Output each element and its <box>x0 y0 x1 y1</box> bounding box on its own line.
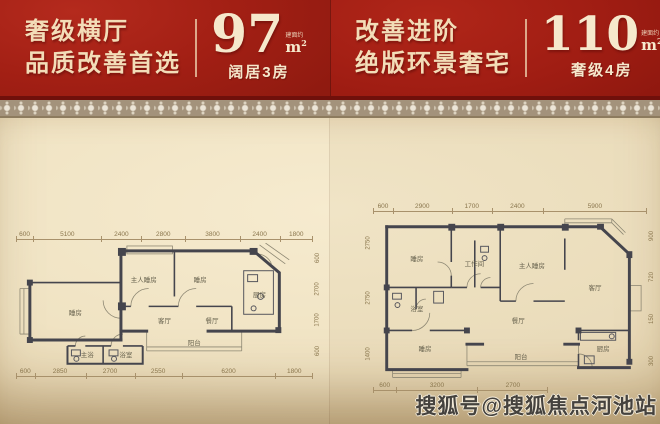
dim-label: 6200 <box>182 368 276 379</box>
room-label: 主人睡房 <box>131 274 157 284</box>
headline-line-2: 绝版环景奢宅 <box>355 48 511 80</box>
room-label: 客厅 <box>158 315 171 325</box>
floorplan-97-body: 睡房主人睡房睡房客厅餐厅厨房主浴浴室阳台 60027001700600 <box>16 243 322 367</box>
decorative-border <box>0 96 660 118</box>
room-label: 工作间 <box>465 258 485 268</box>
dim-label: 2700 <box>86 368 135 379</box>
area-note: 建面约 <box>285 30 303 39</box>
area-figure: 110 建面约 m2 <box>541 16 660 55</box>
room-label: 餐厅 <box>206 315 219 325</box>
dim-label: 1400 <box>366 347 372 360</box>
dim-label: 900 <box>649 231 655 241</box>
dim-label: 2550 <box>135 368 182 379</box>
dim-row-bottom: 60028502700255062001800 <box>16 368 313 379</box>
dim-label: 3800 <box>185 231 240 242</box>
dim-label: 600 <box>16 368 35 379</box>
area-block-110: 110 建面约 m2 奢级4房 <box>541 16 660 80</box>
dim-label: 2400 <box>492 203 543 214</box>
area-unit-m: m <box>641 36 657 54</box>
dim-col-left-110: 275027501400 <box>364 215 373 381</box>
dim-label: 600 <box>373 203 393 214</box>
headline-line-1: 改善进阶 <box>355 16 511 48</box>
floorplans-area: 600510024002800380024001800 <box>0 118 660 424</box>
banner-divider <box>195 19 197 77</box>
dim-label: 1800 <box>280 231 313 242</box>
promo-poster: 奢级横厅 品质改善首选 97 建面约 m2 阔居3房 改善进阶 绝版环景奢宅 <box>0 0 660 424</box>
dim-label: 150 <box>649 314 655 324</box>
banner-110: 改善进阶 绝版环景奢宅 110 建面约 m2 奢级4房 <box>330 0 660 96</box>
dim-row-top: 600510024002800380024001800 <box>16 231 313 242</box>
banner-divider <box>525 19 527 77</box>
room-label: 阳台 <box>188 337 201 347</box>
room-labels-97: 睡房主人睡房睡房客厅餐厅厨房主浴浴室阳台 <box>16 243 313 367</box>
dim-label: 1700 <box>315 314 321 327</box>
area-unit-m: m <box>285 38 301 56</box>
dim-label: 1700 <box>452 203 492 214</box>
room-label: 厨房 <box>597 343 610 353</box>
floorplan-97: 600510024002800380024001800 <box>16 230 322 380</box>
area-figure: 97 建面约 m2 <box>211 14 307 57</box>
area-number: 110 <box>541 16 639 55</box>
room-label: 主人睡房 <box>519 260 545 270</box>
dim-label: 600 <box>315 253 321 263</box>
area-unit: m2 <box>285 39 306 55</box>
banner-row: 奢级横厅 品质改善首选 97 建面约 m2 阔居3房 改善进阶 绝版环景奢宅 <box>0 0 660 96</box>
area-unit-block: 建面约 m2 <box>285 30 306 57</box>
room-label: 阳台 <box>514 351 527 361</box>
headline-line-1: 奢级横厅 <box>25 16 181 48</box>
room-label: 主浴 <box>81 349 94 359</box>
dim-label: 2400 <box>101 231 141 242</box>
dim-label: 2900 <box>393 203 452 214</box>
dim-col-right-97: 60027001700600 <box>313 243 322 367</box>
dim-label: 720 <box>649 272 655 282</box>
room-label: 睡房 <box>419 343 432 353</box>
dim-label: 2400 <box>240 231 280 242</box>
headline-line-2: 品质改善首选 <box>25 48 181 80</box>
room-label: 睡房 <box>410 253 423 263</box>
banner-97-headline: 奢级横厅 品质改善首选 <box>25 16 181 80</box>
dim-label: 2750 <box>366 236 372 249</box>
dim-label: 2750 <box>366 291 372 304</box>
dim-label: 5900 <box>543 203 647 214</box>
area-unit-block: 建面约 m2 <box>641 28 660 55</box>
floorplan-110-body: 275027501400 <box>364 215 656 381</box>
watermark: 搜狐号@搜狐焦点河池站 <box>416 390 657 420</box>
dim-row-top: 6002900170024005900 <box>373 203 647 214</box>
area-block-97: 97 建面约 m2 阔居3房 <box>211 14 321 82</box>
area-note: 建面约 <box>641 28 659 37</box>
dim-label: 300 <box>649 356 655 366</box>
dim-label: 600 <box>373 382 396 393</box>
room-label: 客厅 <box>588 282 601 292</box>
dim-label: 1800 <box>275 368 313 379</box>
dim-label: 600 <box>315 346 321 356</box>
area-subtitle: 奢级4房 <box>571 59 632 80</box>
dim-label: 2800 <box>141 231 185 242</box>
room-label: 浴室 <box>410 303 423 313</box>
room-label: 睡房 <box>69 307 82 317</box>
area-unit: m2 <box>641 37 660 53</box>
area-unit-sup: 2 <box>301 38 307 48</box>
banner-110-headline: 改善进阶 绝版环景奢宅 <box>355 16 511 80</box>
room-label: 厨房 <box>253 289 266 299</box>
dim-label: 5100 <box>33 231 101 242</box>
dim-col-right-110: 900720150300 <box>647 215 656 381</box>
area-number: 97 <box>211 14 283 57</box>
dim-label: 2700 <box>315 283 321 296</box>
floorplan-110: 6002900170024005900 275027501400 <box>364 202 656 394</box>
area-subtitle: 阔居3房 <box>228 61 289 82</box>
room-labels-110: 睡房浴室工作间主人睡房客厅餐厅睡房阳台厨房 <box>373 215 647 381</box>
dim-label: 2850 <box>35 368 86 379</box>
room-label: 睡房 <box>194 274 207 284</box>
room-label: 浴室 <box>119 349 132 359</box>
center-seam <box>329 118 330 424</box>
dim-label: 600 <box>16 231 33 242</box>
room-label: 餐厅 <box>512 315 525 325</box>
banner-97: 奢级横厅 品质改善首选 97 建面约 m2 阔居3房 <box>0 0 330 96</box>
